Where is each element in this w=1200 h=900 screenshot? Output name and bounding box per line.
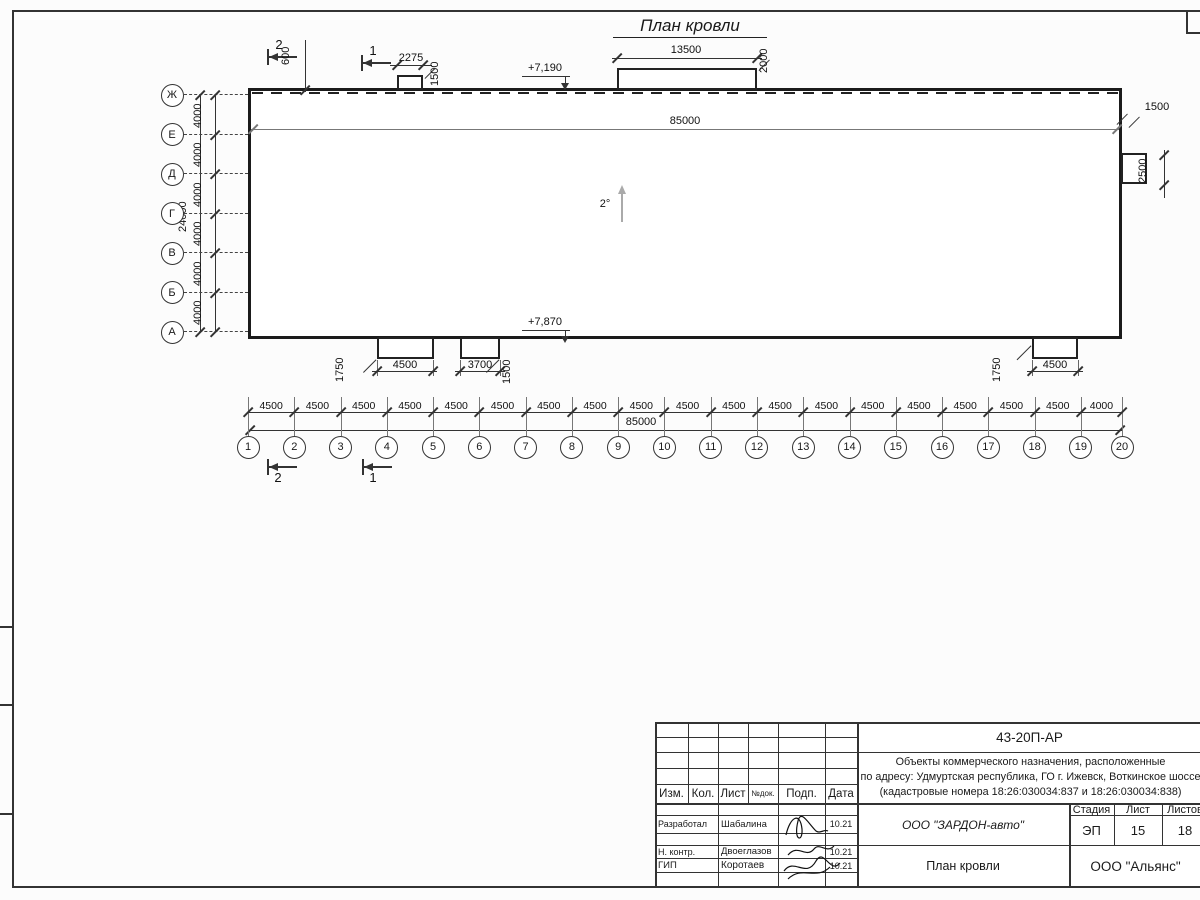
level-mark-top: +7,190 — [522, 62, 568, 74]
col-axis-extension — [1122, 397, 1123, 436]
row-axis-circle: Е — [161, 123, 184, 146]
frame-top-line — [12, 10, 1200, 12]
leader-line — [1129, 117, 1141, 129]
col-axis-circle: 17 — [977, 436, 1000, 459]
project-address-line3: (кадастровые номера 18:26:030034:837 и 1… — [859, 784, 1200, 799]
col-spacing-label: 4500 — [479, 400, 525, 412]
col-axis-circle: 2 — [283, 436, 306, 459]
row-axis-circle: В — [161, 242, 184, 265]
project-address-line1: Объекты коммерческого назначения, распол… — [859, 754, 1200, 769]
col-spacing-label: 4500 — [387, 400, 433, 412]
col-spacing-label: 4500 — [942, 400, 988, 412]
slope-arrow-icon — [618, 185, 626, 194]
frame-margin-tick — [0, 704, 12, 706]
col-axis-circle: 15 — [884, 436, 907, 459]
stage-value: ЭП — [1069, 816, 1114, 845]
row-axis-circle: Б — [161, 281, 184, 304]
sig-name: Двоеглазов — [721, 845, 777, 858]
frame-corner-box — [1186, 10, 1188, 34]
level-arrow-icon — [561, 83, 569, 90]
row-spacing-label: 4000 — [192, 222, 204, 246]
parapet-dashed-line — [252, 92, 1118, 94]
col-spacing-label: 4500 — [526, 400, 572, 412]
col-header-list: Лист — [718, 784, 748, 803]
sheets-total: 18 — [1162, 816, 1200, 845]
col-axis-circle: 3 — [329, 436, 352, 459]
section-1-top-label: 1 — [366, 43, 380, 58]
sheet-title: План кровли — [859, 845, 1067, 887]
slope-label: 2° — [594, 198, 616, 210]
sig-role: Н. контр. — [658, 845, 717, 858]
col-header-podp: Подп. — [778, 784, 825, 803]
sheet-header: Лист — [1114, 803, 1162, 816]
row-axis-circle: Ж — [161, 84, 184, 107]
dim-canopy-large-width: 13500 — [656, 44, 716, 56]
col-spacing-label: 4500 — [1035, 400, 1081, 412]
col-axis-circle: 4 — [375, 436, 398, 459]
col-axis-circle: 19 — [1069, 436, 1092, 459]
row-axis-circle: Д — [161, 163, 184, 186]
col-spacing-label: 4500 — [757, 400, 803, 412]
bottom-canopy-mid — [460, 337, 500, 359]
col-dim-line — [248, 412, 1122, 413]
dim-right-canopy-width: 4500 — [1029, 359, 1081, 371]
level-arrow-icon — [561, 336, 569, 343]
col-axis-circle: 6 — [468, 436, 491, 459]
dim-85000-interior-line — [251, 129, 1119, 130]
level-mark-bottom-underline — [522, 330, 570, 331]
project-address-line2: по адресу: Удмуртская республика, ГО г. … — [859, 769, 1200, 784]
dim-mid-canopy-depth: 1500 — [501, 360, 513, 384]
col-axis-circle: 16 — [931, 436, 954, 459]
col-spacing-label: 4500 — [850, 400, 896, 412]
canopy-small — [397, 75, 423, 90]
row-axis-circle: Г — [161, 202, 184, 225]
sig-name: Коротаев — [721, 858, 777, 872]
sig-name: Шабалина — [721, 815, 777, 833]
col-spacing-label: 4500 — [988, 400, 1034, 412]
row-spacing-label: 4000 — [192, 103, 204, 127]
dim-left-canopy-width: 4500 — [379, 359, 431, 371]
section-1-top-arrow-icon — [363, 59, 372, 67]
drawing-title: План кровли — [613, 16, 767, 38]
frame-margin-tick — [0, 813, 12, 815]
sheets-header: Листов — [1162, 803, 1200, 816]
frame-corner-box — [1186, 32, 1200, 34]
dim-13500-line — [612, 58, 762, 59]
frame-margin-tick — [0, 626, 12, 628]
sig-role: Разработал — [658, 815, 717, 833]
stage-header: Стадия — [1069, 803, 1114, 816]
title-block: 43-20П-АР Объекты коммерческого назначен… — [655, 722, 1200, 888]
sig-role: ГИП — [658, 858, 717, 872]
dim-ledge-height-line — [1164, 150, 1165, 198]
row-spacing-label: 4000 — [192, 143, 204, 167]
contractor-name: ООО "Альянс" — [1069, 845, 1200, 887]
row-spacing-label: 4000 — [192, 261, 204, 285]
col-axis-circle: 5 — [422, 436, 445, 459]
col-header-kol: Кол. — [688, 784, 718, 803]
col-axis-circle: 9 — [607, 436, 630, 459]
dim-canopy-large-depth: 2000 — [758, 49, 770, 73]
col-total-line — [248, 430, 1122, 431]
dim-canopy-small-depth: 1500 — [429, 62, 441, 86]
frame-left-line — [12, 10, 14, 888]
col-spacing-label: 4500 — [711, 400, 757, 412]
col-header-izm: Изм. — [655, 784, 688, 803]
col-axis-circle: 7 — [514, 436, 537, 459]
row-total-line — [200, 95, 201, 332]
canopy-large — [617, 68, 757, 90]
dim-ledge-width: 1500 — [1135, 101, 1179, 113]
col-spacing-label: 4500 — [433, 400, 479, 412]
col-spacing-label: 4000 — [1081, 400, 1122, 412]
doc-number: 43-20П-АР — [857, 724, 1200, 750]
section-2-bottom-label: 2 — [271, 470, 285, 485]
dim-right-canopy-depth: 1750 — [991, 358, 1003, 382]
drawing-sheet: План кровли 2 1 600 2275 1500 +7,190 135… — [0, 0, 1200, 900]
signature-squiggles — [778, 807, 858, 887]
col-axis-circle: 14 — [838, 436, 861, 459]
col-header-ndok: №док. — [748, 784, 778, 803]
dim-left-canopy-depth: 1750 — [334, 358, 346, 382]
col-axis-circle: 1 — [237, 436, 260, 459]
sheet-number: 15 — [1114, 816, 1162, 845]
row-axis-circle: А — [161, 321, 184, 344]
level-mark-bottom: +7,870 — [522, 316, 568, 328]
col-axis-circle: 10 — [653, 436, 676, 459]
slope-arrow-line — [621, 192, 623, 222]
section-1-bottom-label: 1 — [366, 470, 380, 485]
bottom-canopy-right — [1032, 337, 1078, 359]
col-spacing-label: 4500 — [572, 400, 618, 412]
col-header-data: Дата — [825, 784, 857, 803]
col-spacing-label: 4500 — [896, 400, 942, 412]
col-total-label: 85000 — [611, 416, 671, 428]
col-spacing-label: 4500 — [618, 400, 664, 412]
dim-600-extension — [305, 40, 306, 92]
col-spacing-label: 4500 — [294, 400, 340, 412]
row-spacing-label: 4000 — [192, 301, 204, 325]
col-spacing-label: 4500 — [664, 400, 710, 412]
col-axis-circle: 20 — [1111, 436, 1134, 459]
col-axis-circle: 8 — [560, 436, 583, 459]
dim-overall-length: 85000 — [655, 115, 715, 127]
section-2-top-arrow-icon — [269, 53, 278, 61]
col-axis-circle: 12 — [745, 436, 768, 459]
row-spacing-label: 4000 — [192, 182, 204, 206]
col-axis-circle: 18 — [1023, 436, 1046, 459]
col-spacing-label: 4500 — [341, 400, 387, 412]
dim-ledge-height: 2500 — [1137, 159, 1149, 183]
dim-4500-left-line — [372, 371, 437, 372]
leader-line — [1016, 345, 1031, 360]
client-name: ООО "ЗАРДОН-авто" — [859, 804, 1067, 845]
dim-parapet-offset: 600 — [280, 47, 292, 65]
bottom-canopy-left — [377, 337, 434, 359]
col-axis-circle: 13 — [792, 436, 815, 459]
col-spacing-label: 4500 — [248, 400, 294, 412]
col-spacing-label: 4500 — [803, 400, 849, 412]
level-mark-top-underline — [522, 76, 570, 77]
col-axis-circle: 11 — [699, 436, 722, 459]
